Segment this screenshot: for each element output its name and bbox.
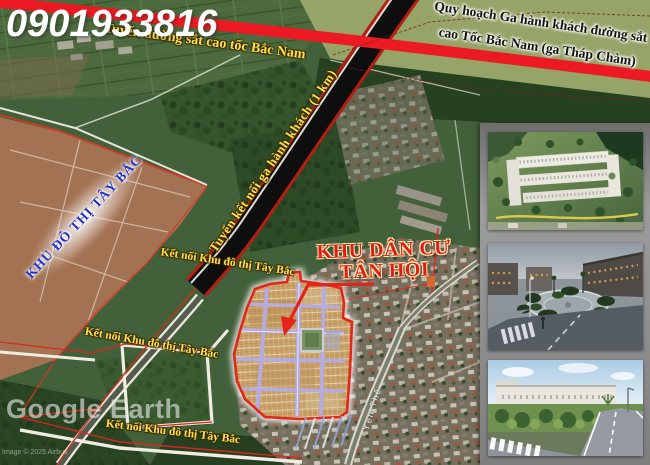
project-plot: [234, 272, 352, 419]
render-gallery: [480, 123, 650, 465]
gallery-image-aerial: [488, 132, 643, 230]
gallery-image-evening: [488, 243, 643, 350]
evening-render-scene: [488, 243, 643, 350]
aerial-render-scene: [488, 132, 643, 230]
real-estate-flyer: 0901933816 Tuyến đường sắt cao tốc Bắc N…: [0, 0, 650, 465]
daytime-render-scene: [488, 360, 643, 456]
gallery-image-daytime: [488, 360, 643, 456]
map-building-marker: [427, 276, 435, 287]
